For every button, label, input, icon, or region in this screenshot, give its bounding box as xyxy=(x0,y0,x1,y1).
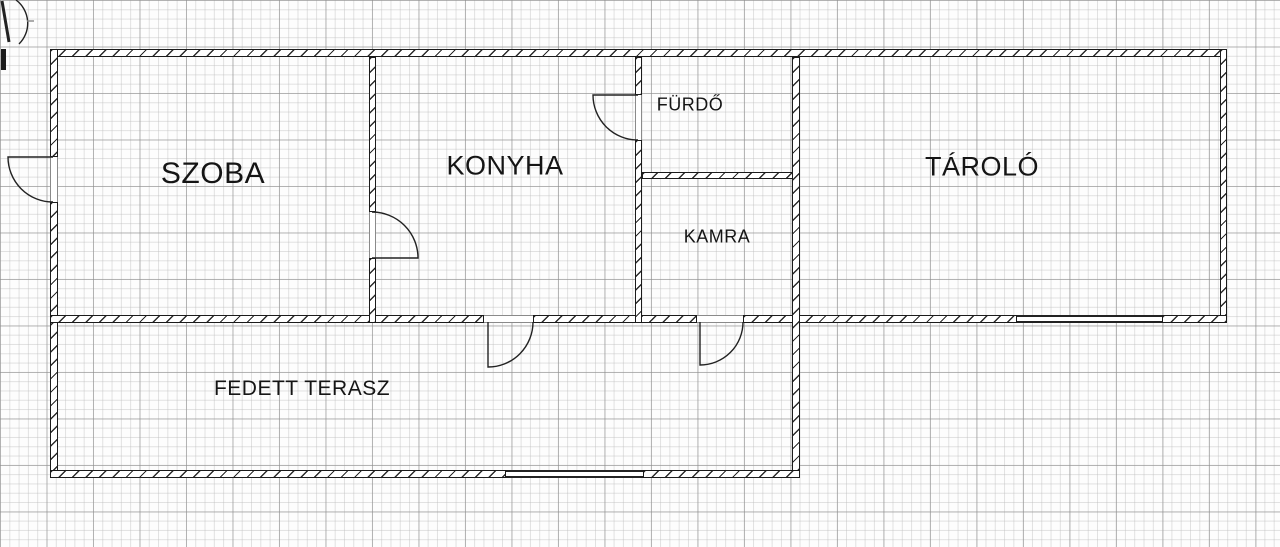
door-swing-icon-kamra-terasz xyxy=(700,322,743,365)
door-swing-icon-szoba-konyha xyxy=(372,212,418,258)
floor-plan-canvas: SZOBA KONYHA FÜRDŐ KAMRA TÁROLÓ FEDETT T… xyxy=(0,0,1280,547)
room-label-tarolo: TÁROLÓ xyxy=(925,152,1039,183)
door-symbols-layer xyxy=(0,0,1280,547)
door-swing-icon-cutoff-top-left xyxy=(1,0,34,70)
room-label-fedett-terasz: FEDETT TERASZ xyxy=(214,377,390,401)
door-swing-icon-entrance xyxy=(8,157,53,202)
room-label-furdo: FÜRDŐ xyxy=(657,95,724,116)
door-swing-icon-konyha-terasz xyxy=(488,322,533,367)
room-label-konyha: KONYHA xyxy=(446,151,563,182)
room-label-szoba: SZOBA xyxy=(161,157,265,191)
room-label-kamra: KAMRA xyxy=(684,227,751,248)
door-swing-icon-konyha-furdo xyxy=(593,95,638,140)
